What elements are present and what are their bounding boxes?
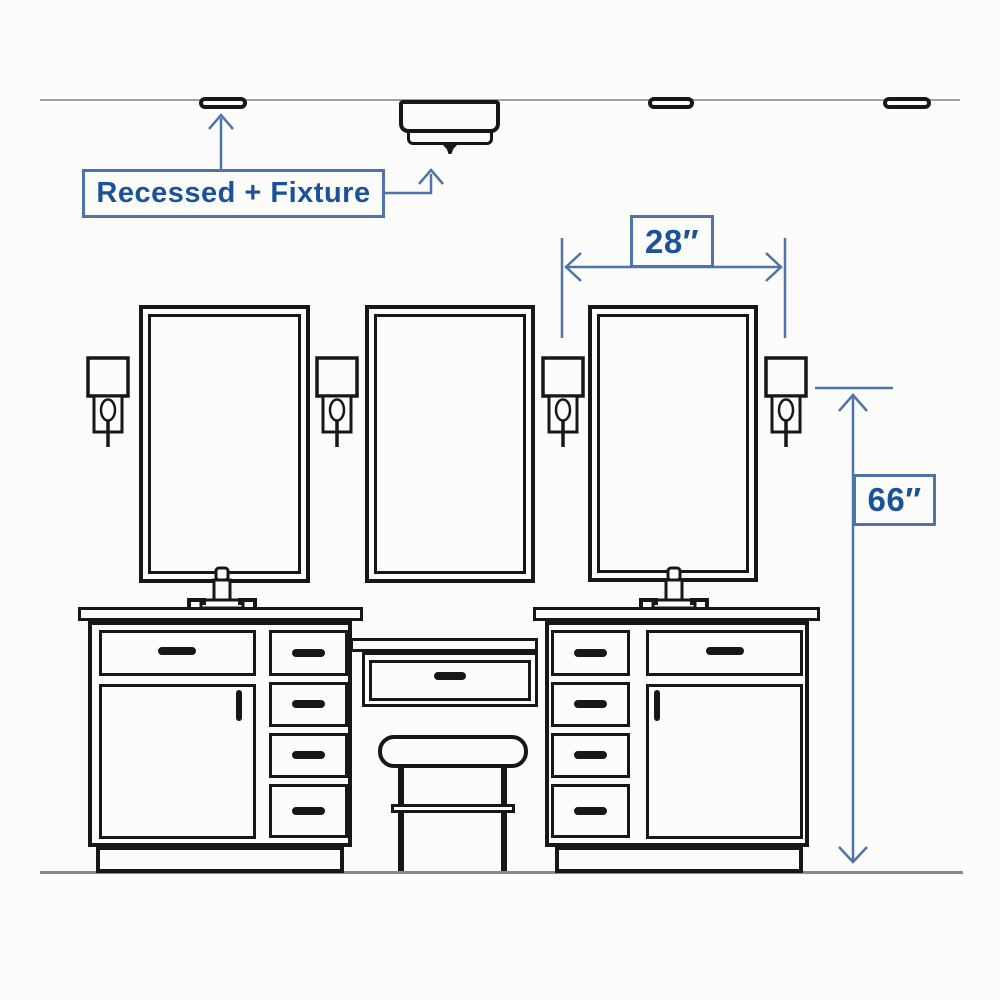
leader-arrow-recessed xyxy=(209,115,233,170)
label-height-66: 66″ xyxy=(853,474,936,526)
label-recessed-fixture-text: Recessed + Fixture xyxy=(96,177,370,210)
vanity-lighting-diagram: Recessed + Fixture 28″ 66″ xyxy=(0,0,1000,1000)
leader-arrow-fixture xyxy=(385,170,443,193)
dimension-66 xyxy=(815,388,893,862)
label-spacing-28-text: 28″ xyxy=(645,223,699,261)
label-height-66-text: 66″ xyxy=(867,481,921,519)
label-spacing-28: 28″ xyxy=(630,215,714,268)
label-recessed-fixture: Recessed + Fixture xyxy=(82,169,385,218)
dimension-layer xyxy=(0,0,1000,1000)
